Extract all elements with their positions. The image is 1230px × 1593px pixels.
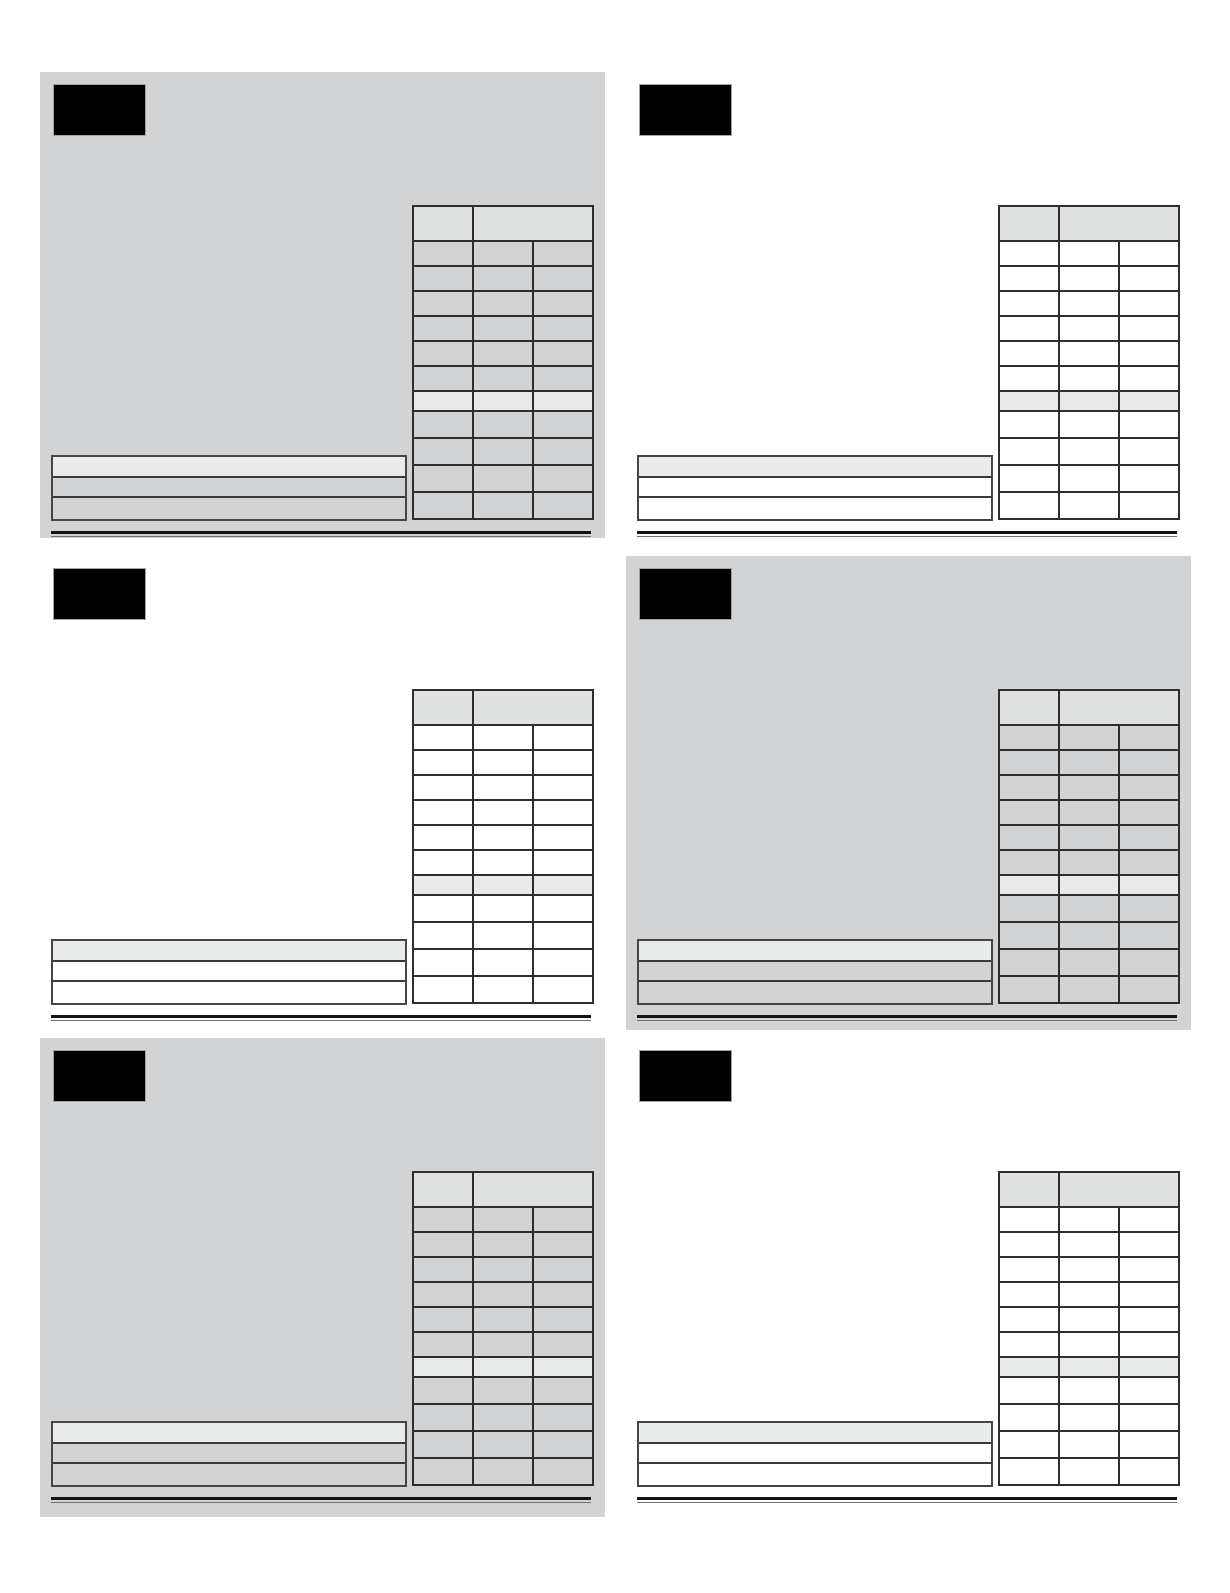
table-cell [1059, 1458, 1119, 1485]
table-row [413, 1431, 593, 1458]
table-cell [533, 1357, 593, 1377]
table-row [999, 775, 1179, 800]
table-cell [1059, 341, 1119, 366]
table-row [413, 1282, 593, 1307]
table-cell [533, 1332, 593, 1357]
table-cell [413, 438, 473, 465]
table-cell [1059, 1257, 1119, 1282]
table-row [413, 438, 593, 465]
table-cell [999, 492, 1059, 519]
table-row [999, 895, 1179, 922]
table-cell [473, 465, 533, 492]
table-cell [1119, 391, 1179, 411]
table-cell [533, 922, 593, 949]
table-cell [1059, 465, 1119, 492]
table-cell [473, 949, 533, 976]
table-cell [999, 725, 1059, 750]
table-cell [413, 391, 473, 411]
table-row [999, 366, 1179, 391]
table-cell [413, 1404, 473, 1431]
table-cell [473, 976, 533, 1003]
table-row [999, 492, 1179, 519]
table-cell [1119, 850, 1179, 875]
table-cell [999, 1207, 1059, 1232]
table-cell [1119, 725, 1179, 750]
table-row [999, 1307, 1179, 1332]
table-cell [533, 438, 593, 465]
table-cell [533, 1431, 593, 1458]
table-cell [1119, 750, 1179, 775]
table-header-cell-left [413, 206, 473, 241]
bar-row [53, 498, 405, 519]
table-cell [999, 1377, 1059, 1404]
table-cell [999, 949, 1059, 976]
table-cell [473, 316, 533, 341]
table-row [999, 949, 1179, 976]
table-cell [999, 438, 1059, 465]
table-cell [473, 922, 533, 949]
bottom-rule [51, 1497, 591, 1503]
table-cell [473, 1207, 533, 1232]
table-row [413, 1257, 593, 1282]
table-cell [1059, 875, 1119, 895]
bar-row-highlight [639, 941, 991, 962]
table-cell [413, 976, 473, 1003]
table-cell [413, 1307, 473, 1332]
table-row [999, 850, 1179, 875]
table-cell [1119, 341, 1179, 366]
table-cell [1059, 1332, 1119, 1357]
table-cell [1119, 922, 1179, 949]
table-row [413, 850, 593, 875]
table-cell [1059, 492, 1119, 519]
table-cell [999, 1458, 1059, 1485]
table-cell [1059, 411, 1119, 438]
table-cell [533, 949, 593, 976]
table-cell [1059, 438, 1119, 465]
table-cell [473, 1257, 533, 1282]
table-row [999, 1332, 1179, 1357]
bar-row [53, 962, 405, 982]
table-cell [473, 895, 533, 922]
bottom-rule [51, 1015, 591, 1021]
bottom-bars [637, 455, 993, 521]
card-panel-3 [40, 556, 605, 1030]
table-cell [473, 875, 533, 895]
table-cell [1119, 895, 1179, 922]
table-cell [473, 438, 533, 465]
table-row [413, 1207, 593, 1232]
table-cell [413, 316, 473, 341]
table-cell [999, 976, 1059, 1003]
table-cell [1059, 1282, 1119, 1307]
table-cell [473, 391, 533, 411]
stats-table [998, 1171, 1180, 1486]
table-row [413, 825, 593, 850]
table-cell [533, 750, 593, 775]
table-cell [1119, 465, 1179, 492]
table-cell [533, 411, 593, 438]
table-cell [1119, 241, 1179, 266]
table-cell [1119, 316, 1179, 341]
table-cell [1059, 775, 1119, 800]
table-cell [413, 949, 473, 976]
table-cell [1059, 949, 1119, 976]
bar-row-highlight [639, 1423, 991, 1444]
table-cell [999, 241, 1059, 266]
table-row [413, 976, 593, 1003]
redacted-title-block [54, 569, 145, 619]
stats-table [998, 205, 1180, 520]
table-cell [473, 1332, 533, 1357]
bottom-bars [637, 1421, 993, 1487]
table-row [413, 492, 593, 519]
table-cell [413, 922, 473, 949]
table-cell [999, 750, 1059, 775]
table-cell [533, 1257, 593, 1282]
table-header-row [413, 206, 593, 241]
table-cell [473, 1282, 533, 1307]
table-cell [1119, 1377, 1179, 1404]
table-cell [413, 800, 473, 825]
bottom-rule [51, 531, 591, 537]
table-cell [999, 1232, 1059, 1257]
table-row-highlight [413, 875, 593, 895]
table-row-highlight [413, 1357, 593, 1377]
table-row [413, 750, 593, 775]
table-cell [1119, 1232, 1179, 1257]
table-cell [999, 800, 1059, 825]
table-cell [473, 850, 533, 875]
table-cell [533, 850, 593, 875]
table-cell [1119, 1307, 1179, 1332]
table-cell [413, 1282, 473, 1307]
table-cell [413, 1431, 473, 1458]
table-cell [1119, 1357, 1179, 1377]
bar-row-highlight [53, 1423, 405, 1444]
table-cell [413, 411, 473, 438]
bottom-bars [51, 455, 407, 521]
table-row [999, 725, 1179, 750]
table-cell [533, 291, 593, 316]
table-cell [473, 1431, 533, 1458]
table-cell [413, 341, 473, 366]
table-row [999, 750, 1179, 775]
table-cell [473, 1458, 533, 1485]
table-cell [999, 1332, 1059, 1357]
stats-table [412, 1171, 594, 1486]
template-sheet [0, 0, 1230, 1593]
table-header-cell-right [473, 206, 593, 241]
table-cell [1059, 1232, 1119, 1257]
table-cell [413, 1332, 473, 1357]
table-cell [533, 1307, 593, 1332]
table-cell [533, 465, 593, 492]
table-cell [1119, 1257, 1179, 1282]
table-cell [413, 266, 473, 291]
table-row [999, 241, 1179, 266]
table-cell [413, 241, 473, 266]
table-header-cell-left [413, 690, 473, 725]
table-cell [999, 1431, 1059, 1458]
table-cell [1059, 825, 1119, 850]
table-row [999, 800, 1179, 825]
redacted-title-block [640, 85, 731, 135]
table-cell [999, 1404, 1059, 1431]
table-cell [413, 875, 473, 895]
table-cell [1119, 1207, 1179, 1232]
table-cell [999, 366, 1059, 391]
table-cell [473, 266, 533, 291]
table-row [999, 316, 1179, 341]
table-cell [533, 1458, 593, 1485]
table-cell [999, 316, 1059, 341]
table-row [413, 1307, 593, 1332]
table-cell [1119, 800, 1179, 825]
table-cell [999, 411, 1059, 438]
bar-row [639, 982, 991, 1003]
table-cell [999, 341, 1059, 366]
table-cell [1059, 1207, 1119, 1232]
table-cell [533, 895, 593, 922]
table-cell [413, 775, 473, 800]
table-row-highlight [999, 1357, 1179, 1377]
table-row [999, 1404, 1179, 1431]
table-row [999, 1458, 1179, 1485]
table-cell [533, 1282, 593, 1307]
table-cell [413, 492, 473, 519]
table-cell [1119, 1282, 1179, 1307]
table-cell [999, 922, 1059, 949]
table-header-cell-left [413, 1172, 473, 1207]
table-cell [1119, 875, 1179, 895]
table-header-row [413, 1172, 593, 1207]
table-header-cell-left [999, 206, 1059, 241]
table-cell [473, 1307, 533, 1332]
redacted-title-block [54, 1051, 145, 1101]
table-cell [533, 1377, 593, 1404]
table-cell [533, 241, 593, 266]
table-cell [1119, 438, 1179, 465]
table-row [999, 976, 1179, 1003]
table-cell [999, 895, 1059, 922]
table-header-cell-right [473, 1172, 593, 1207]
table-cell [999, 266, 1059, 291]
table-cell [1059, 725, 1119, 750]
bottom-rule [637, 1497, 1177, 1503]
bar-row-highlight [53, 457, 405, 478]
table-cell [999, 850, 1059, 875]
table-cell [1059, 266, 1119, 291]
table-cell [533, 976, 593, 1003]
table-cell [1119, 411, 1179, 438]
bar-row-highlight [53, 941, 405, 962]
table-cell [413, 1357, 473, 1377]
table-cell [473, 750, 533, 775]
table-cell [413, 850, 473, 875]
table-cell [1119, 366, 1179, 391]
table-cell [413, 895, 473, 922]
table-cell [999, 775, 1059, 800]
stats-table [998, 689, 1180, 1004]
table-row [999, 411, 1179, 438]
bar-row [53, 982, 405, 1003]
table-cell [1059, 750, 1119, 775]
table-cell [999, 465, 1059, 492]
table-row [999, 1377, 1179, 1404]
redacted-title-block [640, 569, 731, 619]
bar-row [639, 1464, 991, 1485]
table-cell [413, 465, 473, 492]
redacted-title-block [54, 85, 145, 135]
table-row [413, 241, 593, 266]
table-cell [1119, 266, 1179, 291]
table-row [413, 411, 593, 438]
table-row [413, 800, 593, 825]
table-cell [533, 341, 593, 366]
table-cell [1119, 1332, 1179, 1357]
table-row-highlight [999, 875, 1179, 895]
bottom-bars [637, 939, 993, 1005]
table-cell [533, 492, 593, 519]
table-header-row [999, 206, 1179, 241]
table-cell [533, 800, 593, 825]
table-cell [533, 725, 593, 750]
table-cell [413, 725, 473, 750]
table-cell [533, 1207, 593, 1232]
table-cell [473, 1377, 533, 1404]
table-cell [533, 391, 593, 411]
table-cell [999, 291, 1059, 316]
table-row [999, 1207, 1179, 1232]
table-row [999, 1282, 1179, 1307]
table-cell [413, 825, 473, 850]
stats-table [412, 689, 594, 1004]
table-row [999, 1232, 1179, 1257]
table-cell [1059, 1431, 1119, 1458]
table-cell [999, 1357, 1059, 1377]
table-cell [1119, 1404, 1179, 1431]
table-row [413, 316, 593, 341]
table-cell [413, 750, 473, 775]
table-cell [1119, 492, 1179, 519]
table-cell [533, 1232, 593, 1257]
table-row [413, 922, 593, 949]
card-panel-2 [626, 72, 1191, 538]
table-cell [473, 825, 533, 850]
table-cell [473, 341, 533, 366]
table-cell [533, 316, 593, 341]
table-row [413, 1332, 593, 1357]
table-cell [1059, 1377, 1119, 1404]
table-cell [1119, 1458, 1179, 1485]
bottom-rule [637, 531, 1177, 537]
table-row [413, 366, 593, 391]
table-cell [473, 291, 533, 316]
table-header-row [999, 1172, 1179, 1207]
table-cell [999, 875, 1059, 895]
stats-table [412, 205, 594, 520]
table-row [413, 266, 593, 291]
table-cell [1059, 366, 1119, 391]
table-cell [473, 492, 533, 519]
table-row [413, 1232, 593, 1257]
bar-row [639, 1444, 991, 1464]
table-cell [413, 1458, 473, 1485]
table-cell [1059, 976, 1119, 1003]
table-header-cell-left [999, 1172, 1059, 1207]
card-panel-5 [40, 1038, 605, 1517]
table-cell [473, 725, 533, 750]
table-cell [1059, 391, 1119, 411]
table-cell [413, 291, 473, 316]
table-row [999, 1431, 1179, 1458]
table-cell [1059, 922, 1119, 949]
table-row [999, 1257, 1179, 1282]
table-cell [999, 1257, 1059, 1282]
table-row [413, 341, 593, 366]
table-cell [1059, 800, 1119, 825]
table-cell [999, 1307, 1059, 1332]
table-header-cell-right [1059, 690, 1179, 725]
table-cell [413, 1377, 473, 1404]
table-row-highlight [413, 391, 593, 411]
table-cell [533, 775, 593, 800]
table-cell [1119, 825, 1179, 850]
table-row-highlight [999, 391, 1179, 411]
table-cell [1119, 976, 1179, 1003]
bottom-bars [51, 939, 407, 1005]
table-cell [1059, 1357, 1119, 1377]
table-cell [473, 366, 533, 391]
table-cell [999, 391, 1059, 411]
table-cell [1059, 316, 1119, 341]
table-row [413, 291, 593, 316]
table-row [999, 922, 1179, 949]
table-cell [473, 241, 533, 266]
table-header-cell-left [999, 690, 1059, 725]
table-cell [473, 411, 533, 438]
table-header-cell-right [1059, 1172, 1179, 1207]
table-header-cell-right [1059, 206, 1179, 241]
table-row [999, 825, 1179, 850]
table-header-cell-right [473, 690, 593, 725]
table-row [413, 725, 593, 750]
table-cell [1059, 895, 1119, 922]
card-panel-6 [626, 1038, 1191, 1517]
bottom-bars [51, 1421, 407, 1487]
table-cell [473, 1404, 533, 1431]
table-cell [1059, 241, 1119, 266]
card-panel-4 [626, 556, 1191, 1030]
table-row [413, 1458, 593, 1485]
table-cell [1059, 291, 1119, 316]
table-cell [999, 825, 1059, 850]
table-cell [473, 1357, 533, 1377]
table-header-row [999, 690, 1179, 725]
table-cell [1119, 1431, 1179, 1458]
table-row [999, 438, 1179, 465]
table-cell [1119, 949, 1179, 976]
table-cell [1119, 775, 1179, 800]
table-row [413, 465, 593, 492]
bar-row [639, 498, 991, 519]
table-cell [1059, 1404, 1119, 1431]
table-row [999, 465, 1179, 492]
table-row [999, 266, 1179, 291]
table-cell [1119, 291, 1179, 316]
table-cell [999, 1282, 1059, 1307]
